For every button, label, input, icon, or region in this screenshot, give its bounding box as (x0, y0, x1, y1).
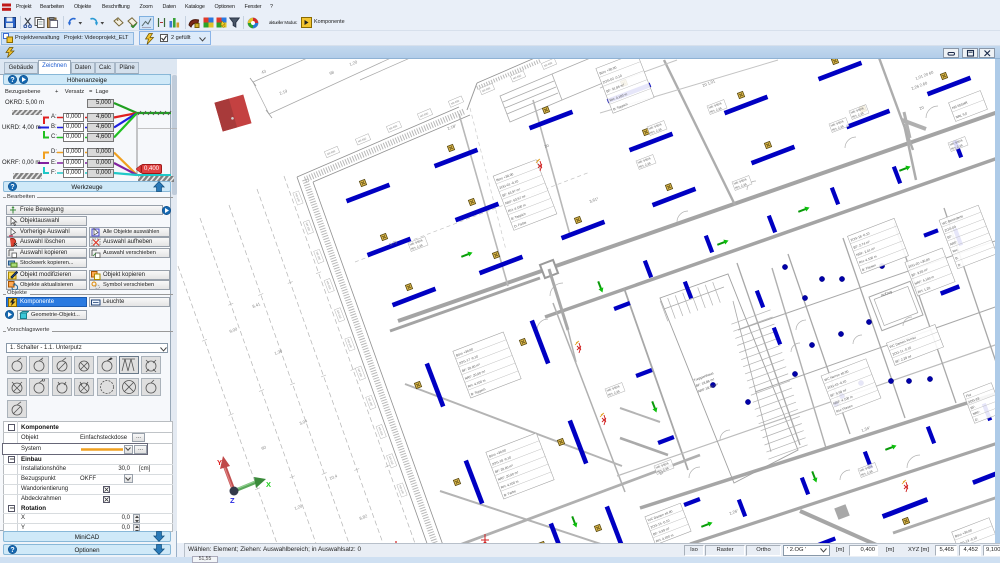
svg-text:10,4: 10,4 (329, 473, 339, 481)
svg-text:20 1,01: 20 1,01 (702, 78, 717, 88)
svg-text:Aufzug: Aufzug (881, 290, 893, 298)
svg-text:43: 43 (261, 68, 268, 75)
svg-text:60: 60 (261, 444, 268, 451)
svg-text:2,26 2,60: 2,26 2,60 (911, 80, 929, 91)
svg-text:1,20: 1,20 (349, 59, 359, 67)
svg-text:98: 98 (329, 69, 336, 76)
svg-text:X: X (266, 480, 271, 489)
svg-text:30: 30 (544, 142, 551, 149)
svg-text:1,01 20 60: 1,01 20 60 (915, 69, 935, 81)
svg-text:1,34°: 1,34° (861, 425, 872, 433)
svg-text:Z: Z (230, 496, 235, 505)
svg-text:?: ? (10, 547, 14, 554)
svg-text:2,19: 2,19 (279, 88, 289, 96)
svg-text:8,41: 8,41 (252, 301, 262, 309)
svg-text:9,00: 9,00 (229, 326, 239, 334)
svg-text:20: 20 (919, 104, 926, 111)
svg-text:2,26°: 2,26° (729, 508, 740, 516)
svg-text:Y: Y (217, 458, 222, 467)
svg-text:?: ? (10, 184, 14, 191)
svg-text:1,30: 1,30 (274, 348, 284, 356)
svg-text:1,20: 1,20 (294, 503, 304, 511)
svg-text:3,61²: 3,61² (589, 196, 600, 204)
svg-text:8,82: 8,82 (359, 513, 369, 521)
